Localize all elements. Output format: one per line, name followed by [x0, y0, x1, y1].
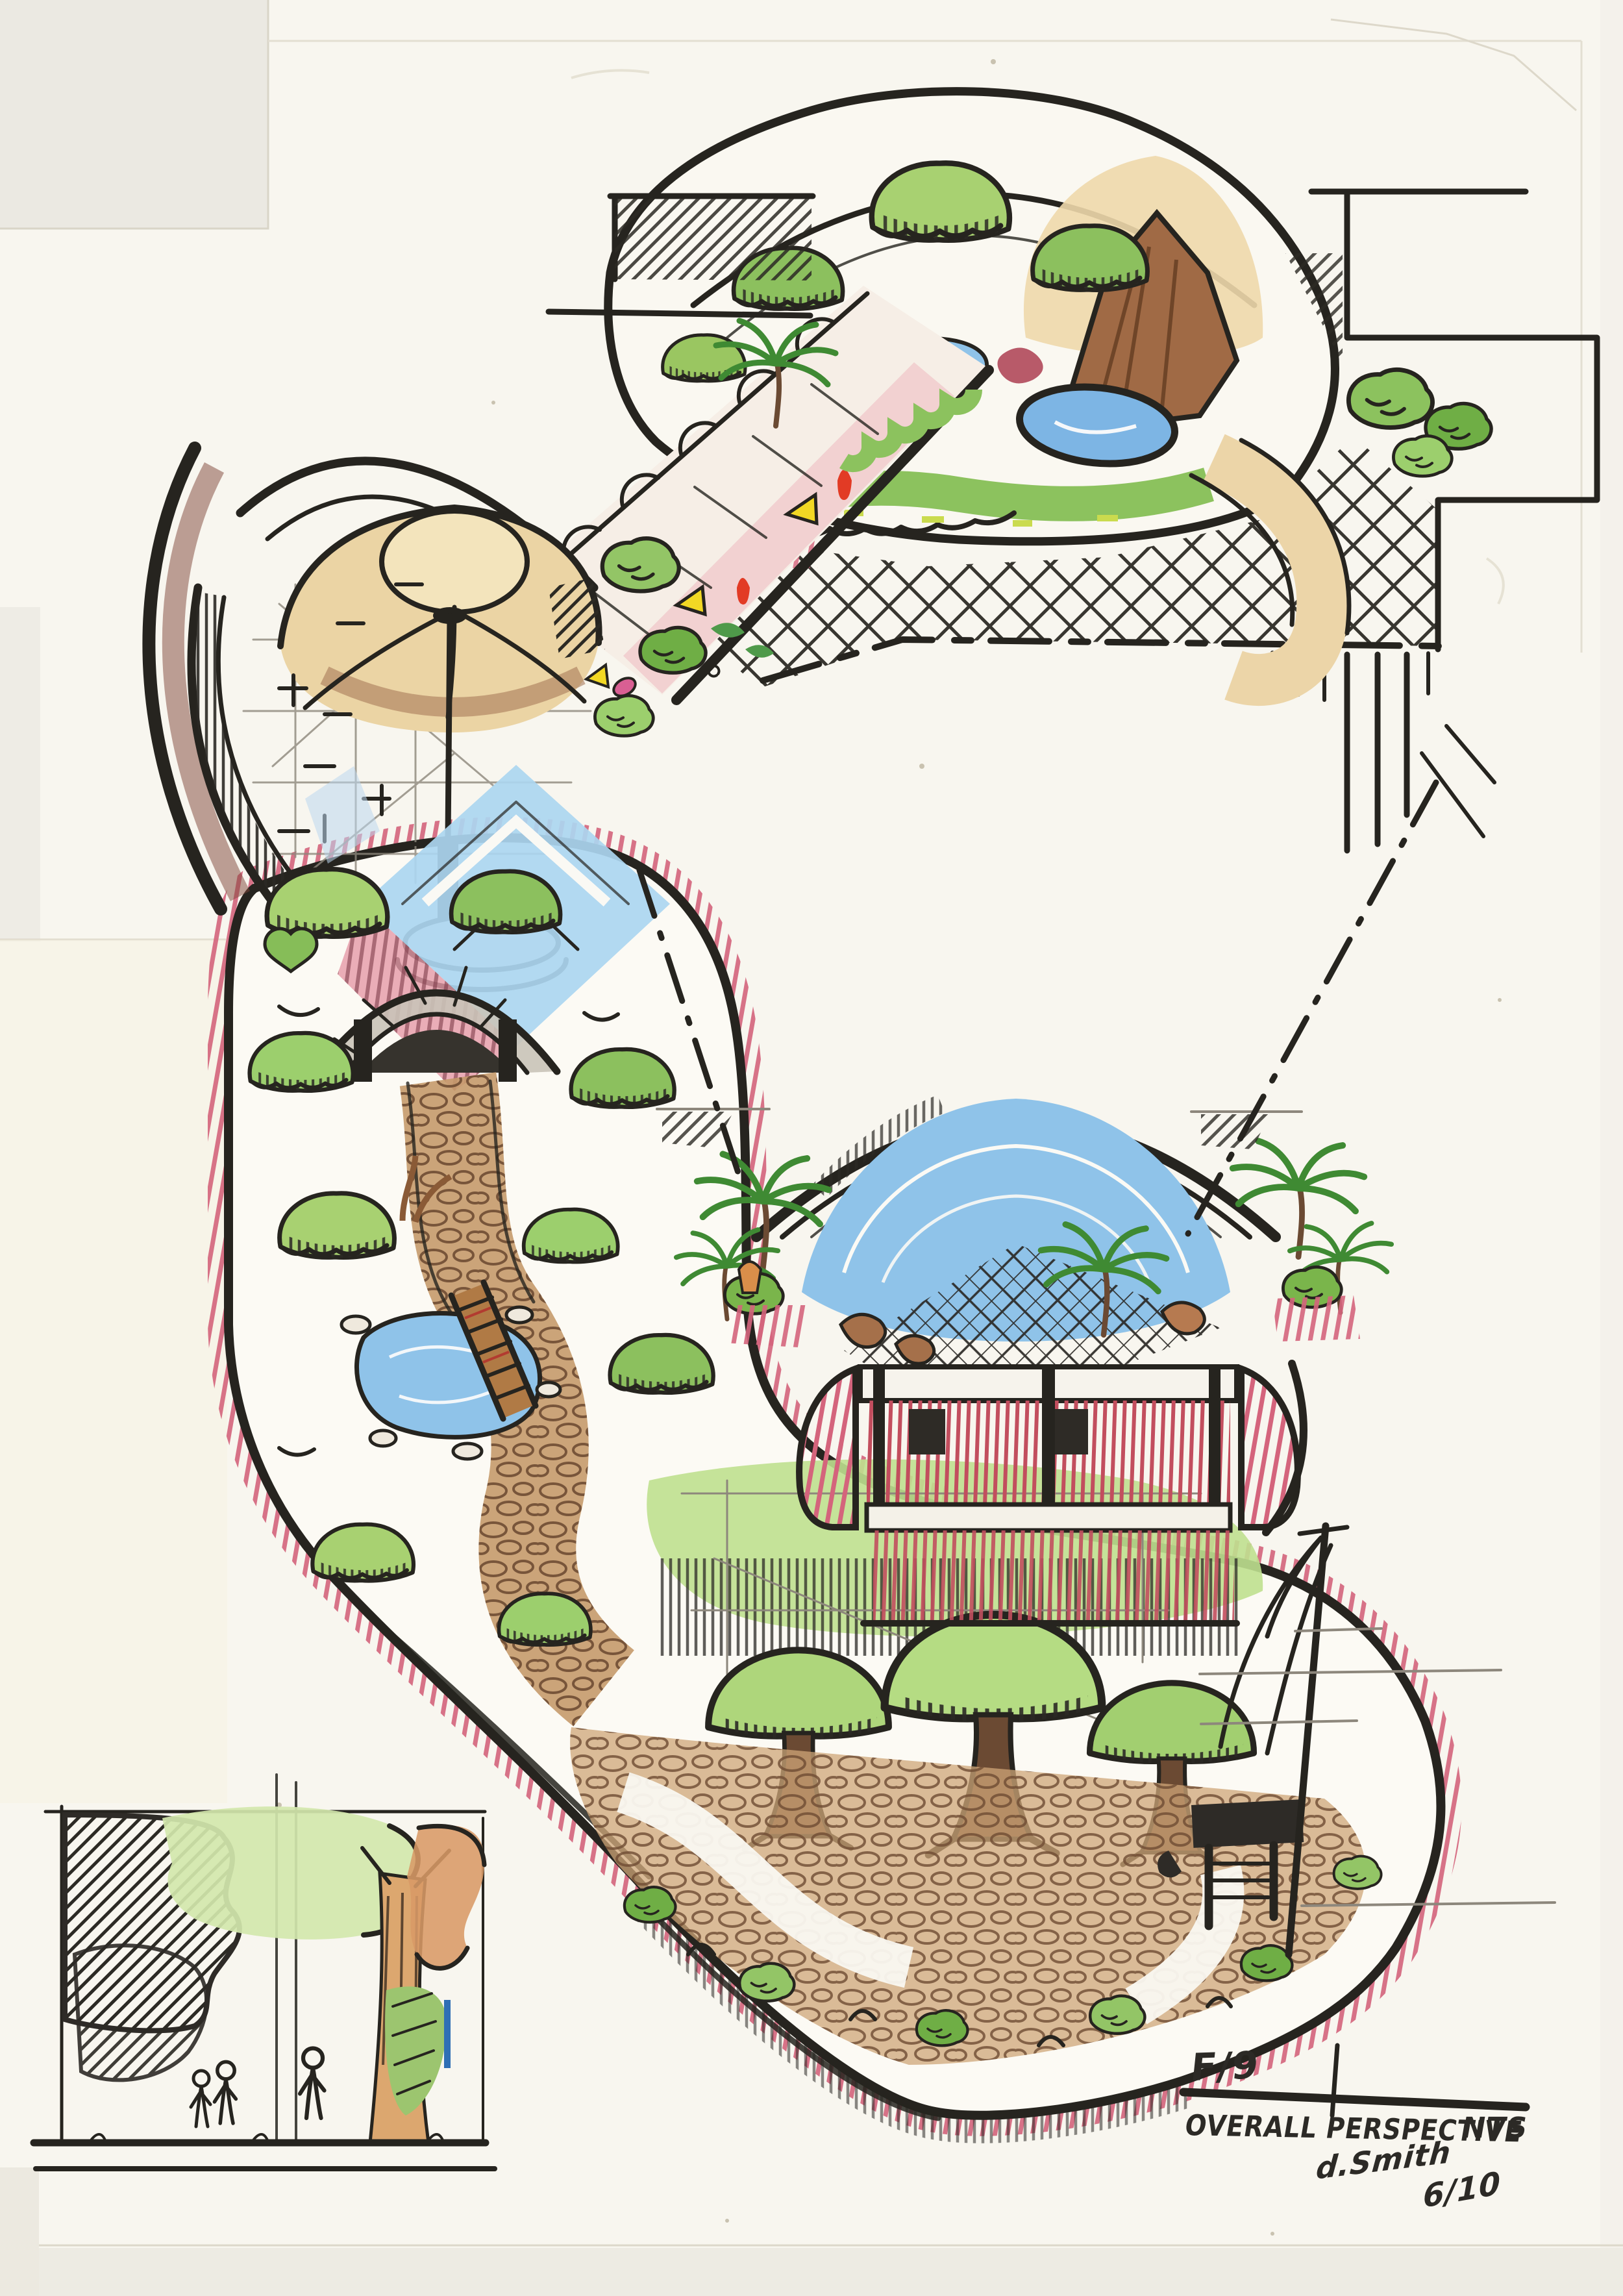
perspective-drawing: [0, 0, 1623, 2296]
inset-low-bush: [75, 1945, 206, 2080]
flanking-palms-right: [1233, 1141, 1391, 1341]
carousel-roof-cap: [382, 511, 527, 612]
inset-right-foliage: [407, 1825, 484, 1968]
viewing-building: [799, 1364, 1304, 1623]
scanned-sketch-sheet: F/9 OVERALL PERSPECTIVE NTS d.Smith 6/10: [0, 0, 1623, 2296]
inset-eye-level-sketch: [34, 1775, 495, 2169]
